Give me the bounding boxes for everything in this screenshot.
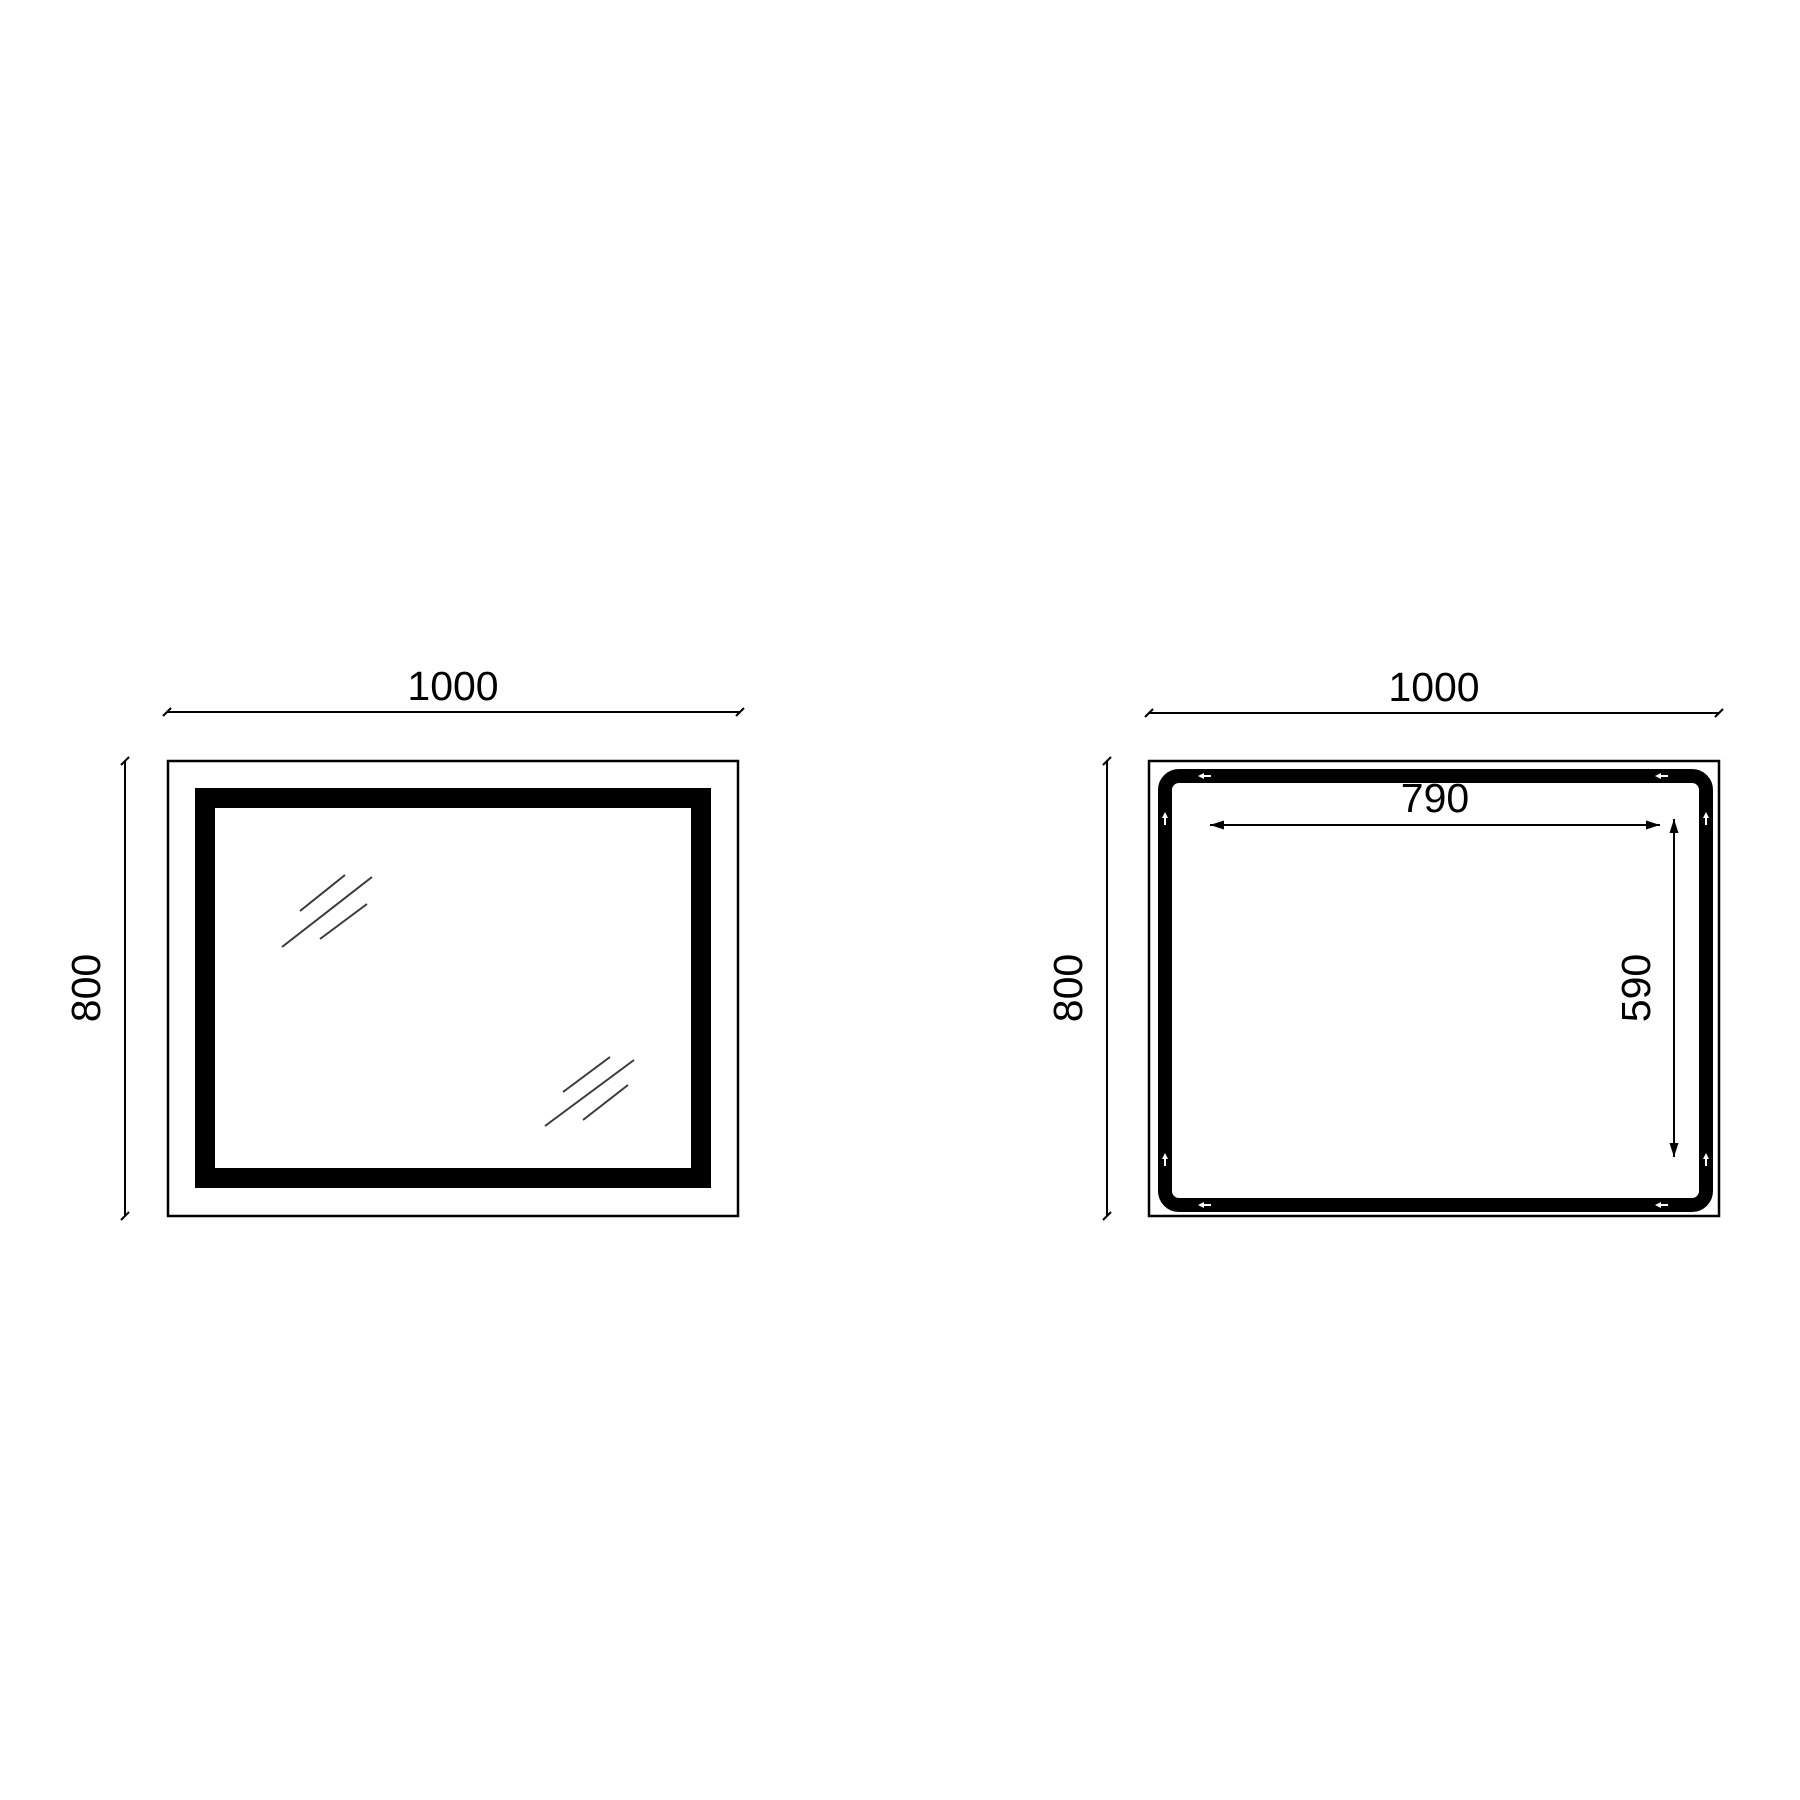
back-inner-height-dimension: [1670, 819, 1679, 1157]
front-mirror-frame: [205, 798, 701, 1178]
dimension-drawing: 1000 800: [0, 0, 1800, 1800]
back-height-dimension: [1103, 757, 1111, 1220]
back-inner-width-dimension: [1210, 821, 1660, 830]
front-width-dimension: [163, 708, 744, 716]
drawing-canvas: 1000 800: [0, 0, 1800, 1800]
glass-reflection-marks: [282, 875, 372, 947]
front-width-label: 1000: [407, 663, 498, 709]
back-width-dimension: [1145, 709, 1723, 717]
back-view: 1000 800 790 590: [1045, 664, 1723, 1220]
back-height-label: 800: [1045, 954, 1091, 1022]
front-outer-outline: [168, 761, 738, 1216]
glass-reflection-marks: [545, 1057, 634, 1126]
back-width-label: 1000: [1388, 664, 1479, 710]
back-inner-width-label: 790: [1401, 775, 1469, 821]
back-inner-height-label: 590: [1613, 954, 1659, 1022]
front-height-label: 800: [63, 954, 109, 1022]
front-height-dimension: [121, 757, 129, 1220]
front-view: 1000 800: [63, 663, 744, 1220]
